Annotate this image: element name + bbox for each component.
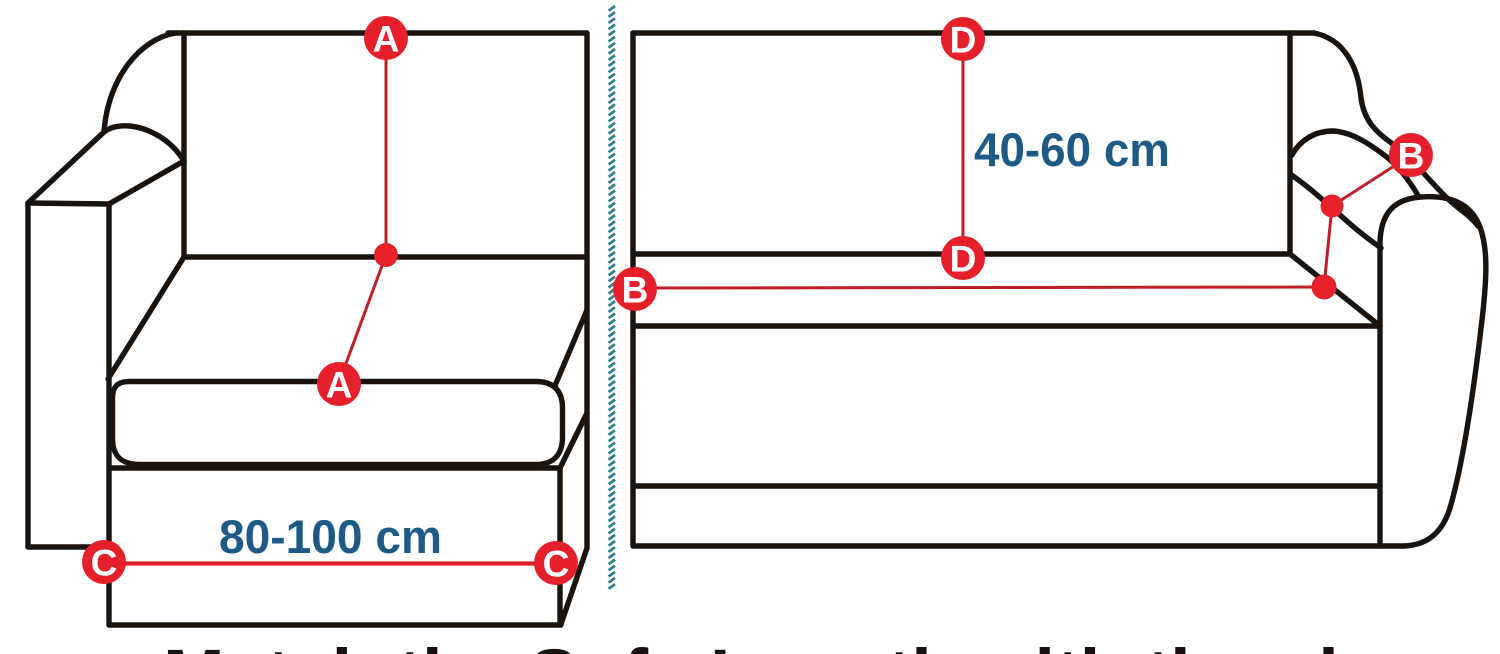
svg-text:80-100 cm: 80-100 cm (219, 510, 442, 563)
svg-text:C: C (91, 543, 118, 584)
svg-text:D: D (950, 20, 977, 61)
svg-text:A: A (326, 365, 353, 406)
svg-text:Match the Sofa Length with the: Match the Sofa Length with the sizes (163, 634, 1458, 654)
svg-text:A: A (373, 19, 400, 60)
svg-text:40-60 cm: 40-60 cm (974, 123, 1170, 176)
svg-text:B: B (1398, 136, 1425, 177)
svg-text:C: C (543, 544, 570, 585)
svg-text:B: B (622, 270, 649, 311)
svg-text:D: D (950, 239, 977, 280)
